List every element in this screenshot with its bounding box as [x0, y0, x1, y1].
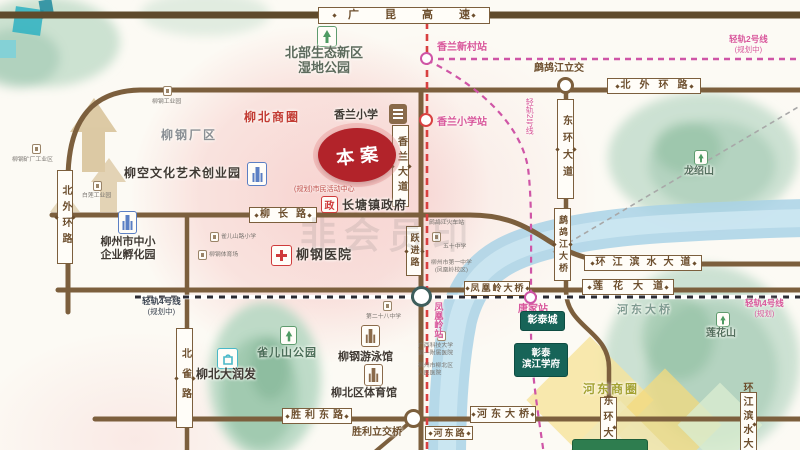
poi-no28-school: 第二十八中学 [366, 313, 401, 320]
tree-icon [317, 26, 337, 47]
roadbox-beique: 北雀路 [176, 328, 193, 428]
poi-queershan-park: 雀儿山公园 [257, 347, 317, 360]
poi-rtmart: 柳北大润发 [196, 368, 256, 382]
roadbox-huanjiang-binshui: 环江滨水大道 [584, 255, 702, 271]
poi-lianhua-mountain: 莲花山 [706, 328, 736, 340]
zone-liugang-plant: 柳钢厂区 [161, 129, 217, 143]
shengli-interchange-label: 胜利立交桥 [352, 427, 402, 439]
rail-line4-label: 轻轨4号线(规划中) [142, 297, 181, 317]
cutoff-green-box [572, 439, 648, 450]
poi-incubator: 柳州市中小企业孵化园 [88, 236, 168, 261]
station-tangjia [524, 291, 537, 304]
poi-liukong-park: 柳空文化艺术创业园 [124, 167, 241, 181]
junction-zhegujiang [557, 77, 574, 94]
factory-icon [93, 181, 102, 191]
location-map: 广昆高速 北外环路 北外环路 柳长路 香兰大道 跃进路 东环大道 鹧鸪江大桥 环… [0, 0, 800, 450]
poi-queershan-school: 雀儿山路小学 [221, 233, 256, 240]
building-icon [247, 162, 267, 186]
roadbox-guangkun-expwy: 广昆高速 [318, 7, 490, 24]
poi-no1-school: 柳州市第一中学(凤凰岭校区) [428, 259, 475, 273]
poi-longshao-mountain: 龙绍山 [684, 166, 714, 178]
poi-xianglan-school: 香兰小学 [334, 109, 378, 122]
school-icon [210, 232, 219, 242]
mall-icon [217, 348, 238, 369]
poi-zhangtai-binjiang: 彰泰滨江学府 [514, 343, 568, 377]
school-icon [383, 301, 392, 311]
tree-icon [694, 150, 708, 165]
hospital-cross-icon [271, 245, 292, 266]
site-label: 本案 [335, 140, 385, 171]
zhegujiang-interchange-label: 鹧鸪江立交 [534, 63, 584, 75]
station-xianglan-xincun-label: 香兰新村站 [437, 42, 487, 54]
roadbox-donghuan-ave: 东环大道 [557, 99, 574, 199]
tree-icon [716, 312, 730, 327]
roadbox-hedong-bridge: 河东大桥 [470, 406, 536, 423]
poi-liugang-industrial: 柳钢工业园 [152, 98, 181, 105]
poi-liugang-mine: 柳钢矿厂工业区 [12, 156, 53, 163]
building-icon [118, 211, 137, 234]
poi-liugang-pool: 柳钢游泳馆 [338, 351, 393, 364]
factory-icon [163, 86, 172, 96]
station-xianglan-school [419, 113, 433, 127]
roadbox-beiwaihuan-north: 北外环路 [607, 78, 701, 94]
station-xianglan-xincun [420, 52, 433, 65]
tree-icon [280, 326, 297, 345]
roadbox-beiwaihuan-west: 北外环路 [57, 170, 73, 264]
roadbox-fenghuangling-bridge: 凤凰岭大桥 [464, 281, 530, 296]
junction-shengli [404, 409, 423, 428]
roadbox-xianglan-ave: 香兰大道 [392, 125, 409, 207]
roadbox-huanjiang-south: 环江滨水大道 [740, 392, 757, 450]
station-fenghuangling-label: 凤凰岭站 [433, 302, 443, 338]
zone-liubei-cbd: 柳北商圈 [244, 111, 300, 125]
rail-line4-east-label: 轻轨4号线(规划) [745, 299, 784, 319]
stadium-icon [198, 250, 207, 260]
poi-changtang-gov-note: (规划)市民活动中心 [294, 186, 355, 194]
poi-liubei-gym: 柳北区体育馆 [331, 387, 397, 400]
roadbox-zhegujiang-bridge: 鹧鸪江大桥 [554, 208, 571, 281]
building-icon [364, 364, 383, 386]
site-marker: 本案 [318, 128, 396, 182]
poi-wetland-park: 北部生态新区湿地公园 [268, 46, 380, 76]
rail-line2-vertical-label: 轻轨2号线 [525, 98, 534, 134]
station-fenghuangling [411, 286, 432, 307]
roadbox-lianhua-ave: 莲花大道 [582, 279, 674, 295]
watermark: 非会员印 [300, 207, 476, 259]
zone-hedong-cbd: 河东商圈 [583, 383, 639, 397]
poi-gxust-hospital: 广西科技大学第一附属医院 [418, 342, 458, 356]
building-icon [361, 325, 380, 347]
rail-line2-label: 轻轨2号线(规划中) [729, 35, 768, 55]
roadbox-hedong-road: 河东路 [425, 426, 473, 440]
poi-liubei-hospital: 柳州市柳北区人民医院 [418, 362, 458, 376]
hedong-bridge-name: 河东大桥 [617, 304, 673, 317]
poi-zhangtai-city: 彰泰城 [520, 311, 565, 331]
factory-icon [32, 144, 41, 154]
station-xianglan-school-label: 香兰小学站 [437, 117, 487, 129]
poi-bailian-industrial: 白莲工业园 [82, 192, 111, 199]
school-icon [389, 104, 407, 124]
poi-liugang-stadium: 柳钢体育场 [209, 251, 238, 258]
roadbox-shengli-east: 胜利东路 [282, 408, 352, 424]
